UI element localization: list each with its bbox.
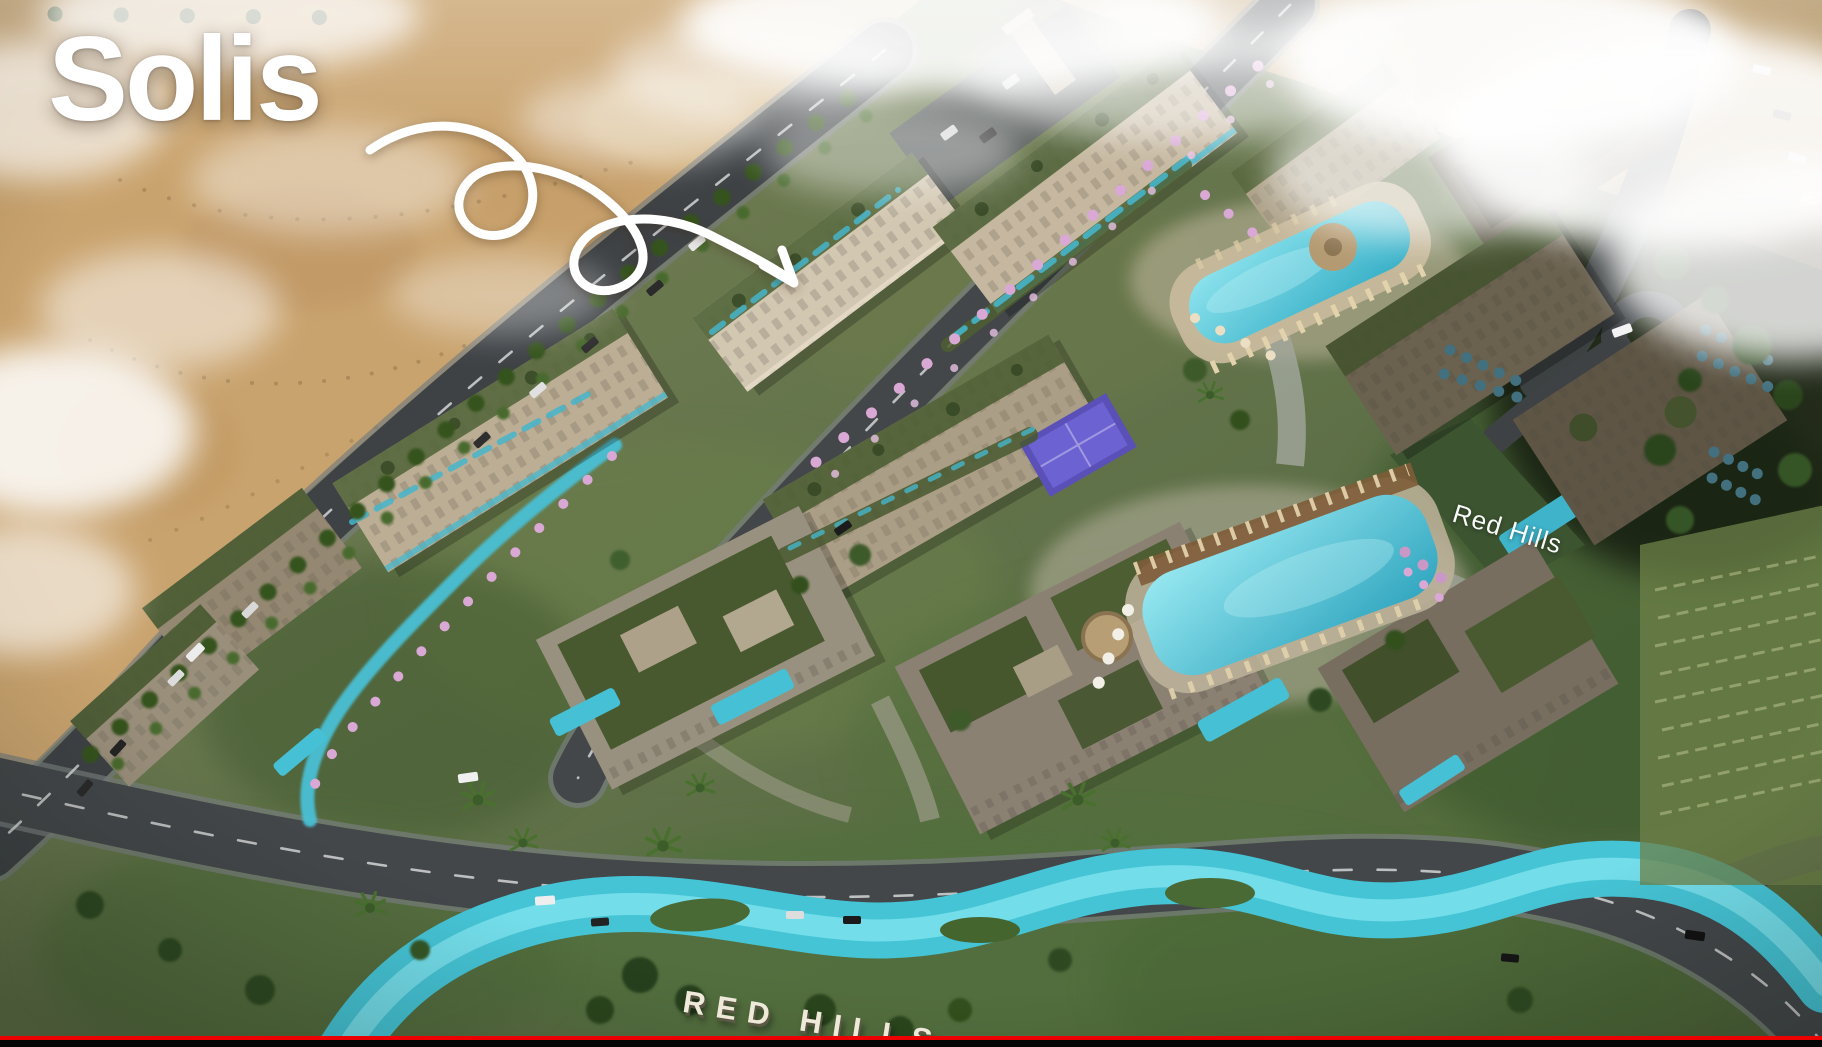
screenshot-root: Solis Red Hills RED HILLS bbox=[0, 0, 1822, 1047]
doodle-arrow-icon bbox=[330, 95, 830, 315]
video-progress-bar[interactable] bbox=[0, 1036, 1822, 1047]
project-title-annotation: Solis bbox=[48, 10, 320, 148]
aerial-render bbox=[0, 0, 1822, 1047]
video-progress-fill bbox=[0, 1036, 1822, 1040]
